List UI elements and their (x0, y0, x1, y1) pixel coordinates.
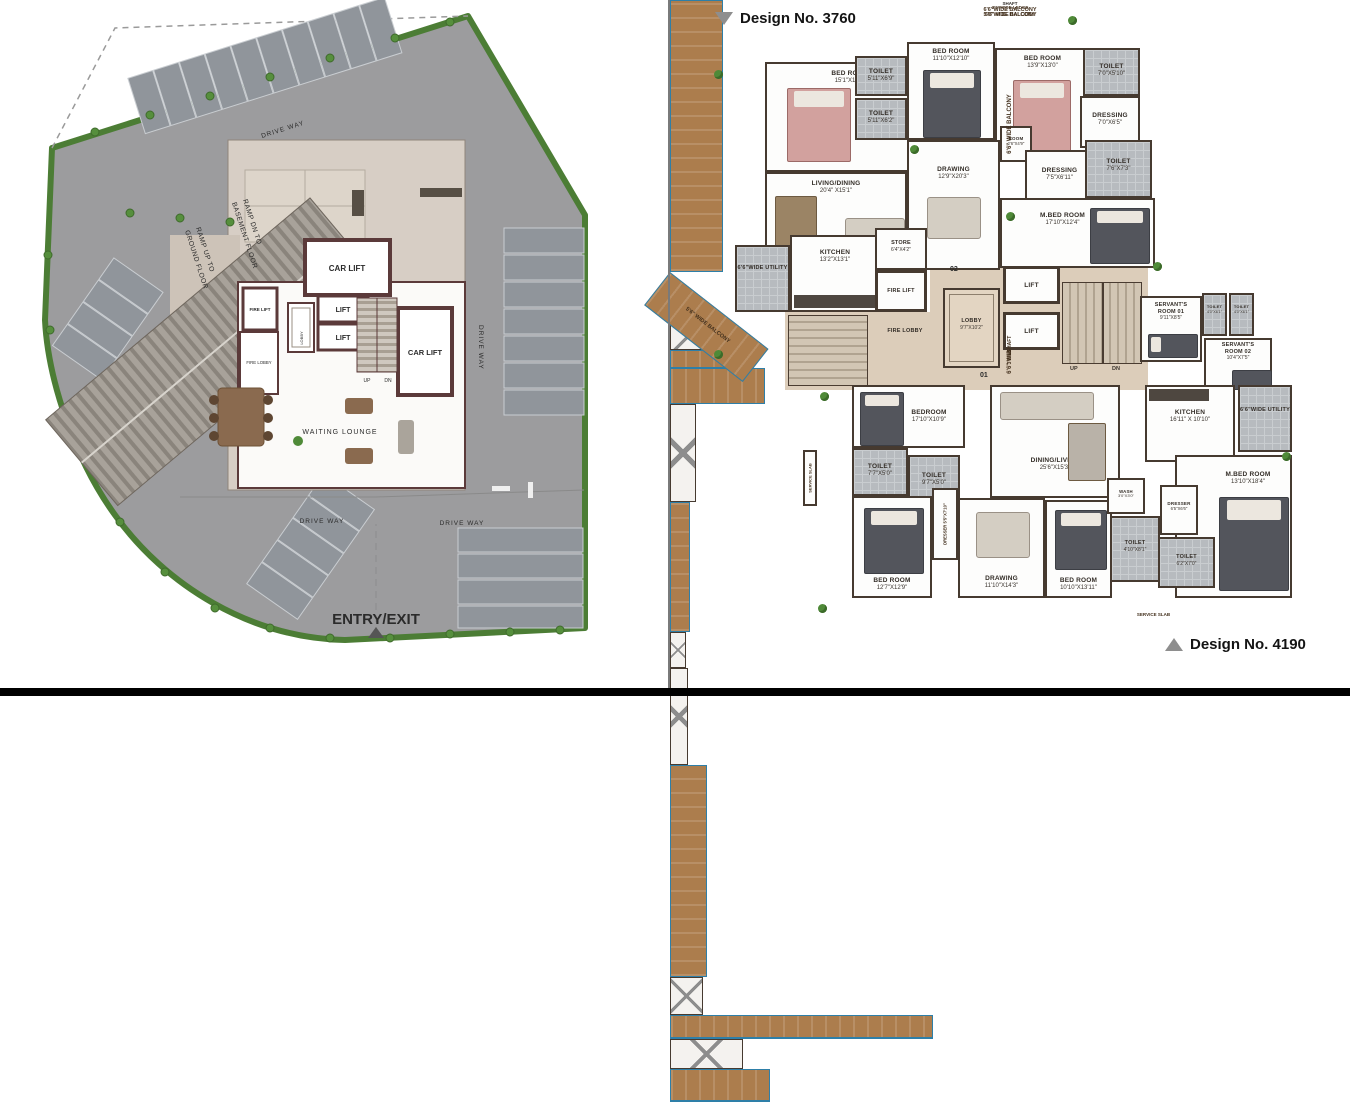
room-bedroom2: BED ROOM11'10"X12'10" (907, 42, 995, 140)
bed-icon (923, 70, 981, 138)
room-toilet4: TOILET7'6"X7'3" (1085, 140, 1152, 198)
lounge-plant (293, 436, 303, 446)
waiting-lounge-label: WAITING LOUNGE (302, 429, 377, 436)
floor-plan-page: { "panels": { "design_top": "Design No. … (0, 0, 1350, 696)
plant-icon (1006, 212, 1015, 221)
panel-divider (668, 0, 670, 688)
service-slab-bottom-label: SERVICE SLAB (1115, 612, 1192, 617)
plant-icon (1153, 262, 1162, 271)
lift2-label: LIFT (336, 335, 351, 342)
dining-table-icon (218, 388, 264, 446)
room-toilet3: TOILET7'0"X5'10" (1083, 48, 1140, 96)
bed-icon (1148, 334, 1198, 358)
flat-number-02: 02 (950, 266, 958, 273)
room-servant1: SERVANT'SROOM 019'11"X8'5" (1140, 296, 1202, 362)
plant-icon (1282, 452, 1291, 461)
shaft-right-top: SHAFT (670, 404, 696, 502)
shaft-servant: SHAFT (670, 668, 688, 765)
plant-icon (820, 392, 829, 401)
room-toilet1: TOILET5'11"X6'9" (855, 56, 907, 96)
room-dressing2: DRESSING7'5"X6'11" (1025, 150, 1094, 205)
stairs-dn-label: DN (1112, 366, 1120, 372)
room-utility-top: 6'6"WIDE UTILITY (735, 245, 790, 312)
room-servant2: SERVANT'SROOM 0210'4"X7'5" (1204, 338, 1272, 390)
design-number-bottom: Design No. 4190 (1165, 636, 1306, 653)
room-toilet-b4: TOILET6'2"X7'0" (1158, 537, 1215, 588)
plant-icon (818, 604, 827, 613)
design-bottom-label: Design No. 4190 (1190, 636, 1306, 653)
stairs-dn-label: DN (384, 378, 392, 384)
balcony-bottom: 6'6"WIDE BALCONY (670, 1015, 933, 1039)
lift1-label: LIFT (336, 307, 351, 314)
shaft-servant-label: SHAFT (1007, 336, 1013, 353)
entry-exit-label: ENTRY/EXIT (332, 611, 420, 628)
lounge-sofa-3 (398, 420, 414, 454)
bed-icon (1219, 497, 1289, 591)
bed-icon (1090, 208, 1150, 264)
plant-icon (714, 350, 723, 359)
bed-icon (864, 508, 924, 574)
stairs-up-label: UP (364, 378, 372, 384)
room-store: STORE6'4"X4'2" (875, 228, 927, 270)
car-lift-top-label: CAR LIFT (329, 264, 366, 273)
balcony-top-right: 5'0"WIDE BALCONY (670, 368, 765, 404)
room-bedroom2-bf: BED ROOM10'10"X13'11" (1045, 500, 1112, 598)
balcony-left-top-flat: 6'6" WIDE BALCONY (670, 0, 723, 272)
core-stairs (1062, 282, 1142, 364)
room-lobby: LOBBY9'7"X10'2" (943, 288, 1000, 368)
kitchen-counter-icon (1149, 389, 1209, 401)
balcony-left-bottom-flat: 6'6" WIDE BALCONY (670, 765, 707, 977)
room-master-bed-top: M.BED ROOM17'10"X12'4" (1000, 198, 1155, 268)
fire-lobby-label: FIRE LOBBY (873, 328, 937, 335)
room-utility-bf: 6'6"WIDE UTILITY (1238, 385, 1292, 452)
shaft-balcony-left (670, 977, 703, 1015)
kitchen-counter-icon (794, 295, 876, 308)
balcony-bottom-right: 6'6" WIDE BALCONY (670, 1069, 770, 1102)
sofa-icon (1000, 392, 1094, 420)
service-slab-left: SERVICE SLAB (803, 450, 817, 506)
flat-number-01: 01 (980, 372, 988, 379)
road-mark-2 (528, 482, 533, 498)
lounge-sofa-2 (345, 448, 373, 464)
dining-table-icon (1068, 423, 1106, 481)
room-dresser-v: DRESSER 5'5"X7'10" (932, 488, 958, 560)
drive-way-right-label: DRIVE WAY (477, 325, 484, 370)
parking-column-right (504, 228, 584, 415)
car-lift-right-label: CAR LIFT (408, 348, 443, 357)
bed-icon (860, 392, 904, 446)
drive-way-bottom-right-label: DRIVE WAY (440, 520, 485, 527)
room-bedroom-top-bf: BEDROOM17'10"X10'9" (852, 385, 965, 448)
bottom-black-bar (0, 688, 1350, 696)
room-kitchen-bf: KITCHEN16'11" X 10'10" (1145, 385, 1235, 462)
room-toilet2: TOILET5'11"X6'2" (855, 98, 907, 140)
room-wash: WASH3'0"X3'0" (1107, 478, 1145, 514)
room-kitchen-top: KITCHEN13'2"X13'1" (790, 235, 880, 312)
deco-wall-2 (420, 188, 462, 197)
room-toilet-b1: TOILET7'7"X5'0" (852, 448, 908, 496)
room-servant-toilet1: TOILET4'0"X6'1" (1202, 293, 1227, 336)
bed-icon (1055, 510, 1107, 570)
parking-block-bottom-right (458, 528, 583, 628)
room-bedroom1-bf: BED ROOM12'7"X12'9" (852, 496, 932, 598)
deco-wall-1 (352, 190, 364, 216)
triangle-up-icon (1165, 638, 1183, 651)
dresser-v-label: DRESSER 5'5"X7'10" (943, 503, 948, 545)
fire-lift-label: FIRE LIFT (250, 307, 271, 312)
ledge-right: 3'0"WIDE LEDGE (670, 502, 690, 632)
elec-shaft: ELEC. SHAFT (670, 632, 686, 668)
fire-lobby-label: FIRE LOBBY (246, 360, 271, 365)
typical-floor-plan: Design No. 3760 6'6" WIDE BALCONY 5'6" W… (670, 0, 1350, 688)
room-fire-lift: FIRE LIFT (875, 270, 927, 312)
service-slab-left-label: SERVICE SLAB (808, 463, 813, 493)
service-slab-bottom-box (670, 1039, 743, 1069)
balcony-bottom-right-label: 6'6" WIDE BALCONY (670, 12, 1350, 18)
plant-icon (714, 70, 723, 79)
lobby-label: LOBBY (299, 331, 304, 345)
bed-icon (787, 88, 851, 162)
site-plan: RAMP DN TO BASEMENT FLOOR RAMP UP TO GRO… (0, 0, 668, 688)
plant-icon (1068, 16, 1077, 25)
lounge-sofa-1 (345, 398, 373, 414)
room-servant-toilet2: TOILET4'0"X6'1" (1229, 293, 1254, 336)
balcony-left-bottom-label: 6'6" WIDE BALCONY (1007, 94, 1013, 154)
room-lift1: LIFT (1003, 266, 1060, 304)
room-dining-living: DINING/LIVING25'6"X15'3" (990, 385, 1120, 498)
sofa-icon (976, 512, 1030, 558)
plant-icon (910, 145, 919, 154)
drive-way-bottom-left-label: DRIVE WAY (300, 518, 345, 525)
stairs-up-label: UP (1070, 366, 1078, 372)
left-stairs (788, 315, 868, 386)
room-drawing-bf: DRAWING11'10"X14'3" (958, 498, 1045, 598)
room-dresser-bf: DRESSER6'5"X6'6" (1160, 485, 1198, 535)
room-toilet-b3: TOILET4'10"X8'1" (1110, 516, 1160, 582)
road-mark-1 (492, 486, 510, 491)
